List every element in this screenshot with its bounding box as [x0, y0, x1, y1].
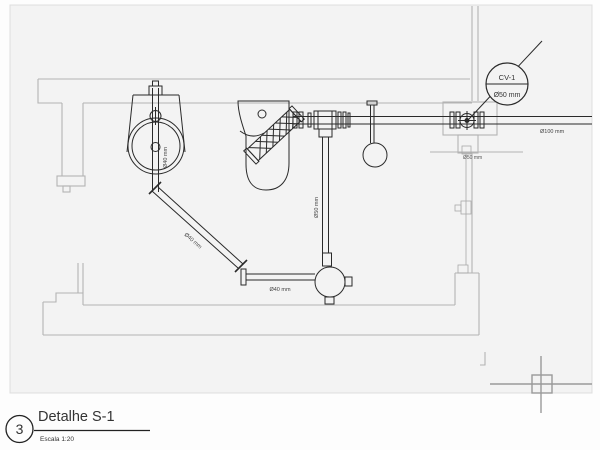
- callout-tag: CV-1: [499, 73, 516, 82]
- detail-title: Detalhe S-1: [38, 409, 115, 425]
- title-block: 3 Detalhe S-1 Escala 1:20: [6, 409, 150, 443]
- label-wc-drop: Ø50 mm: [314, 196, 320, 218]
- cad-canvas: Ø50 mm Ø40 mm Ø40 mm Ø40 mm: [0, 0, 600, 450]
- label-vent-drop: Ø50 mm: [463, 155, 482, 161]
- label-main-line: Ø100 mm: [540, 129, 565, 135]
- detail-scale: Escala 1:20: [40, 436, 74, 443]
- label-basin-drain: Ø40 mm: [163, 146, 169, 168]
- callout-size: Ø50 mm: [494, 92, 521, 99]
- detail-number: 3: [16, 421, 24, 437]
- label-horizontal-run: Ø40 mm: [269, 287, 291, 293]
